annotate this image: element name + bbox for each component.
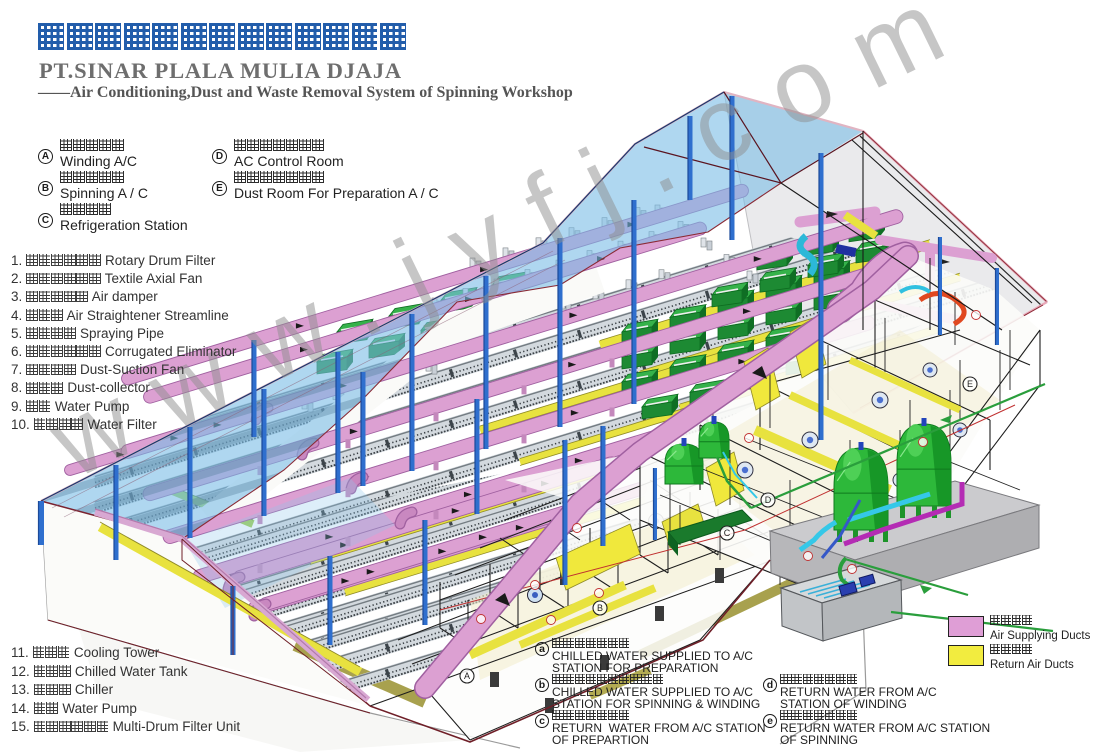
svg-text:E: E	[967, 379, 973, 389]
svg-text:B: B	[597, 603, 603, 613]
svg-text:D: D	[765, 495, 772, 505]
svg-text:C: C	[724, 528, 731, 538]
svg-text:A: A	[464, 671, 470, 681]
